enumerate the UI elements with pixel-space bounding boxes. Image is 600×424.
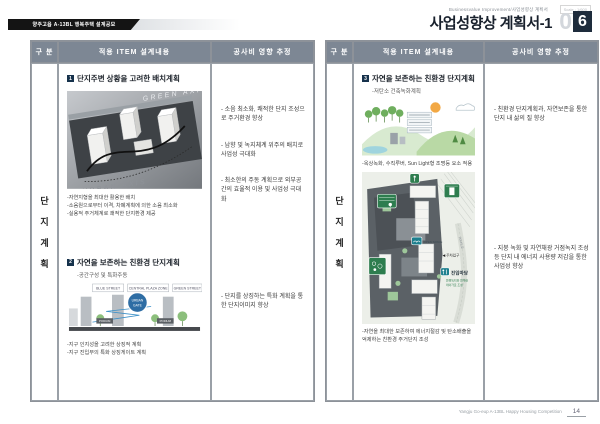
- item2-subtitle: -공간구성 및 특화주동: [77, 271, 202, 279]
- entry-court-note2: 테마가로 조성: [446, 281, 463, 286]
- page-number-badge: 0 6: [559, 11, 592, 32]
- parking-entrance-label: ◀ 주차입구: [442, 252, 460, 257]
- tab-blue-street: BLUE STREET: [96, 286, 121, 290]
- item2-number-icon: 2: [67, 259, 74, 266]
- urban-axis-diagram: GREEN AXIS URBAN AXIS: [67, 91, 202, 189]
- playground-badge: [369, 257, 386, 274]
- item3-number-icon: 3: [362, 75, 369, 82]
- project-banner: 양주고읍 A-13BL 행복주택 설계공모: [8, 19, 140, 30]
- podium-label-left: PODIUM: [99, 319, 111, 323]
- cost-note: - 소음 최소화, 쾌적한 단지 조성으로 주거환경 향상: [221, 106, 306, 125]
- cost-note: - 남향 및 녹지체계 위주의 배치로 사업성 극대화: [221, 142, 306, 161]
- item1-number-icon: 1: [67, 75, 74, 82]
- item1-title: 1 단지주변 상황을 고려한 배치계획: [67, 73, 202, 84]
- cost-note: - 최소한의 주동 계획으로 외부공간의 효율적 이용 및 사업성 극대화: [221, 177, 306, 205]
- header-category: 구 분: [326, 41, 353, 63]
- category-label-left: 단 지 계 획: [31, 63, 58, 401]
- cost-note: - 지붕 녹화 및 자연채광 거점녹지 조성 등 단지 내 에너지 사용량 저감…: [494, 245, 590, 273]
- eco-street-badge: [377, 194, 396, 208]
- right-cost-cell: - 친환경 단지계획과, 자연보존을 통한 단지 내 삶의 질 향상 - 지붕 …: [484, 63, 598, 401]
- item3-title: 3 자연을 보존하는 친환경 단지계획: [362, 73, 475, 84]
- page-footer: Yangju Go-eup A-13BL Happy Housing Compe…: [459, 408, 586, 417]
- plan-caption: -자연을 최대한 보존하여 에너지절감 및 탄소배출을 억제하는 친환경 주거단…: [362, 329, 475, 345]
- cost-note: - 단지를 상징하는 특화 계획을 통한 단지이미지 향상: [221, 293, 306, 312]
- site-plan-diagram: OPEN SPACE ◀ 주차입구 20M도로 진입마당 연결녹지와 연계한 테…: [362, 172, 475, 324]
- page-title: 사업성향상 계획서-1: [430, 12, 552, 33]
- header-item: 적용 ITEM 설계내용: [58, 41, 211, 63]
- eco-greening-illustration: [362, 99, 475, 156]
- podium-label-right: PODIUM: [160, 319, 172, 323]
- header-cost: 공사비 영향 추정: [211, 41, 314, 63]
- header-item: 적용 ITEM 설계내용: [353, 41, 484, 63]
- pedestrian-badge: [410, 173, 419, 182]
- footer-project-name: Yangju Go-eup A-13BL Happy Housing Compe…: [459, 409, 562, 414]
- left-plan-table: 구 분 적용 ITEM 설계내용 공사비 영향 추정 단 지 계 획 1 단지주…: [30, 40, 315, 402]
- urban-gate-badge-line1: URBAN: [132, 298, 144, 302]
- left-content-cell: 1 단지주변 상황을 고려한 배치계획: [58, 63, 211, 401]
- header-cost: 공사비 영향 추정: [484, 41, 598, 63]
- header-category: 구 분: [31, 41, 58, 63]
- urban-gate-badge-line2: GATE: [133, 303, 143, 307]
- entry-court-label: 진입마당: [451, 269, 469, 276]
- open-space-icon: [412, 237, 422, 245]
- tab-green-street: GREEN STREET: [174, 286, 202, 290]
- left-cost-cell: - 소음 최소화, 쾌적한 단지 조성으로 주거환경 향상 - 남향 및 녹지체…: [211, 63, 314, 401]
- page-number-light: 0: [559, 11, 572, 32]
- open-space-label: OPEN SPACE: [424, 240, 443, 244]
- entry-court-icon: [441, 267, 450, 275]
- facade-feature-badge: [444, 183, 459, 197]
- item2-bullets: -지구 인지성을 고려한 상징적 계획 -지구 진입부의 특화 상징게이트 계획: [67, 341, 202, 358]
- footer-page-number: 14: [567, 408, 586, 417]
- item3-subtitle: -저탄소 건축녹화계획: [372, 87, 475, 95]
- cost-note: - 친환경 단지계획과, 자연보존을 통한 단지 내 삶의 질 향상: [494, 106, 590, 125]
- street-zone-diagram: BLUE STREET CENTRAL PLAZA ZONE GREEN STR…: [67, 283, 202, 336]
- tab-central-plaza: CENTRAL PLAZA ZONE: [129, 286, 169, 290]
- item2-title: 2 자연을 보존하는 친환경 단지계획: [67, 257, 202, 268]
- category-label-right: 단 지 계 획: [326, 63, 353, 401]
- page-number-dark: 6: [573, 11, 592, 32]
- right-plan-table: 구 분 적용 ITEM 설계내용 공사비 영향 추정 단 지 계 획 3 자연을…: [325, 40, 599, 402]
- right-content-cell: 3 자연을 보존하는 친환경 단지계획 -저탄소 건축녹화계획: [353, 63, 484, 401]
- eco-bullet: -옥상녹화, 수직루버, Sun Light형 조명등 요소 적용: [362, 160, 475, 167]
- entry-court-note1: 연결녹지와 연계한: [446, 277, 469, 282]
- item1-bullets: -자연지형을 최대한 활용한 배치 -소음원으로부터 이격, 차폐계획에 의한 …: [67, 194, 202, 219]
